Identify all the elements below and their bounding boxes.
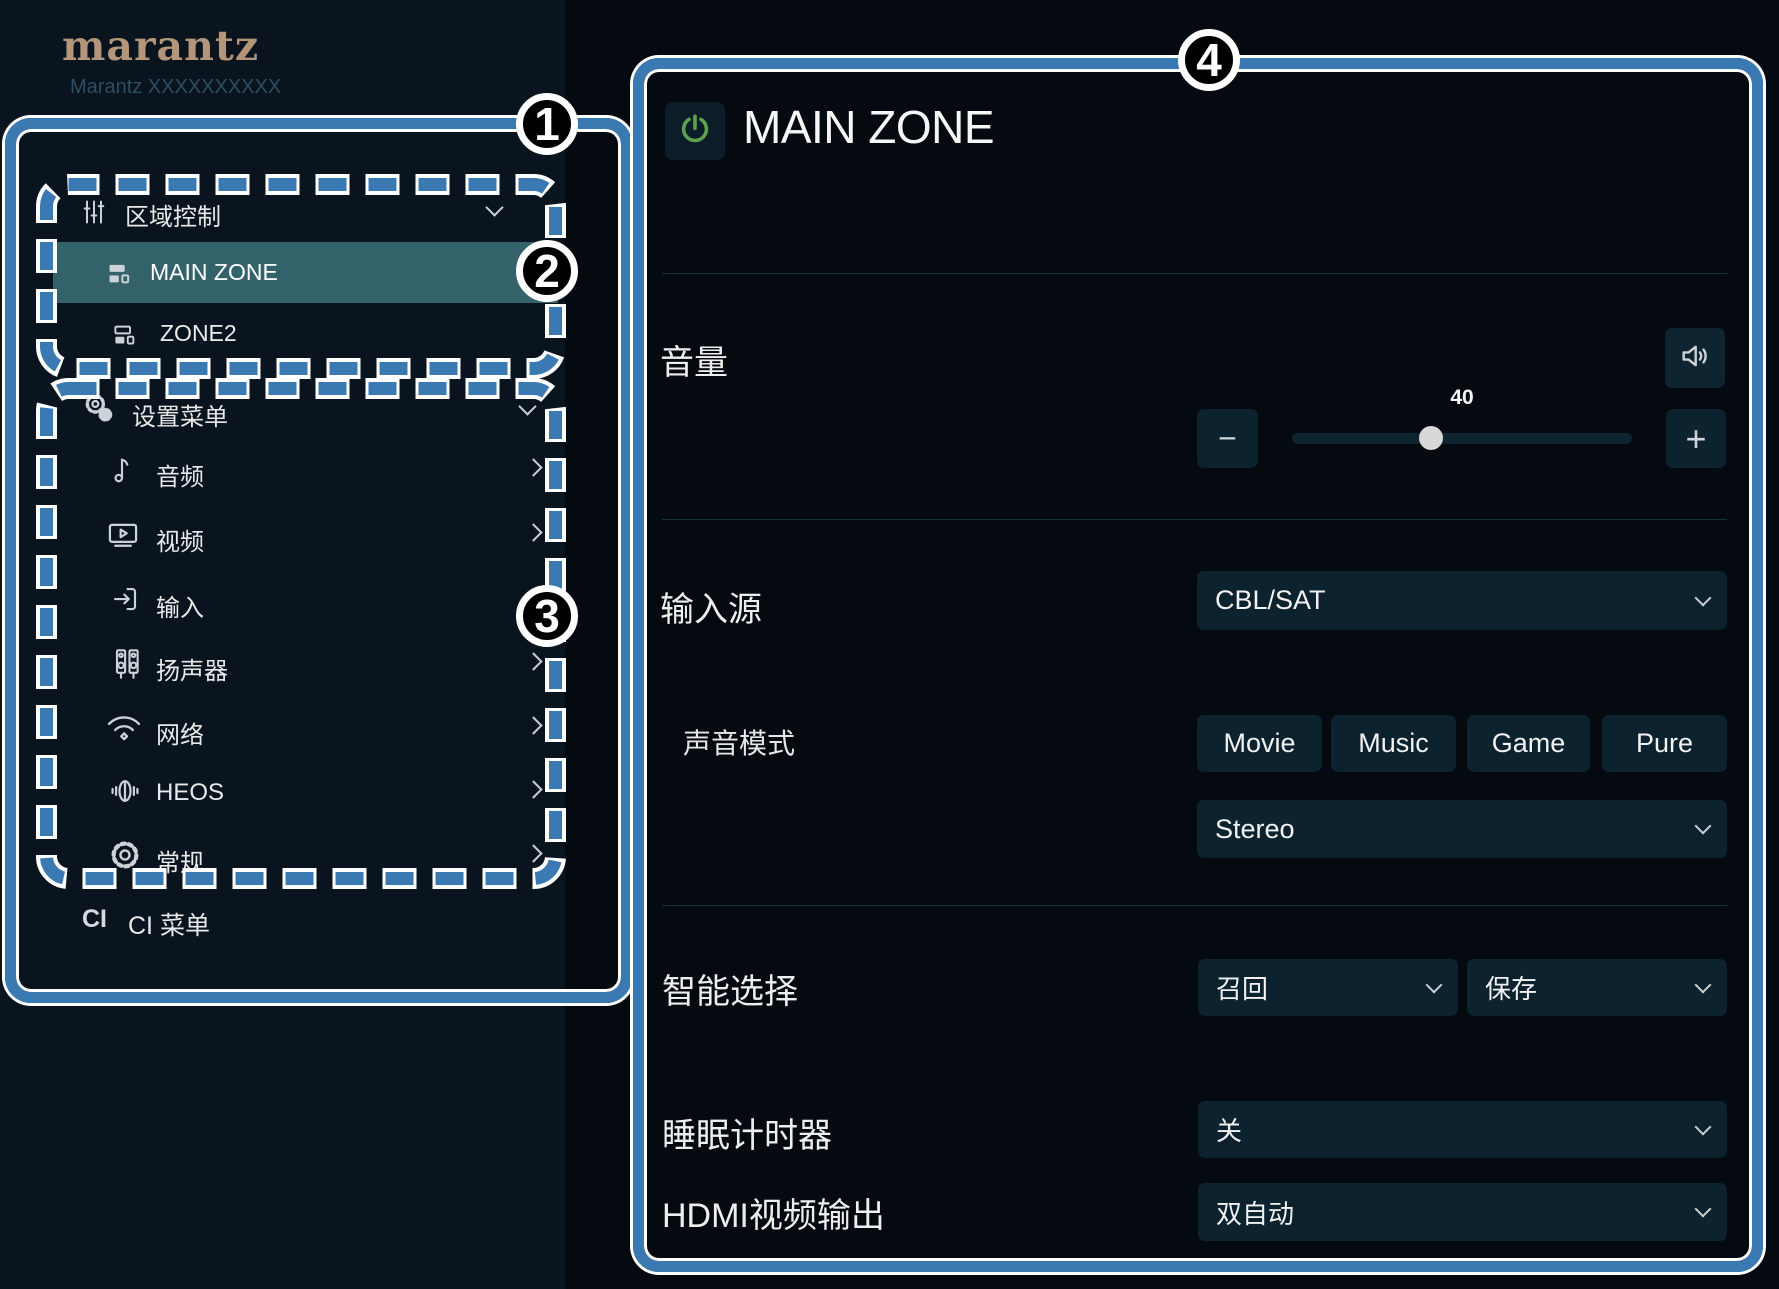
annotation-badge-4: 4 [1178,29,1240,91]
zone-icon [112,321,139,353]
chevron-down-icon [1426,976,1443,993]
sidebar-item-label: MAIN ZONE [150,259,278,286]
sidebar-item-label: 网络 [156,715,204,750]
chevron-down-icon[interactable] [485,198,503,216]
divider [662,905,1727,906]
smart-select-save-select[interactable]: 保存 [1467,959,1727,1016]
mode-button-label: Pure [1636,728,1693,759]
sidebar-item-ci-menu[interactable]: CI CI 菜单 [0,903,565,935]
chevron-down-icon [1695,1118,1712,1135]
hdmi-output-label: HDMI视频输出 [662,1188,885,1237]
power-icon [677,111,713,152]
chevron-down-icon [1695,589,1712,606]
sidebar-item-heos[interactable]: HEOS [0,777,565,807]
plus-icon: + [1685,418,1706,460]
sidebar-item-speakers[interactable]: 扬声器 [0,649,565,679]
sidebar-item-audio[interactable]: 音频 [0,455,565,485]
mode-button-label: Game [1492,728,1566,759]
sleep-timer-label: 睡眠计时器 [662,1108,832,1157]
input-source-select[interactable]: CBL/SAT [1197,571,1727,630]
hdmi-output-select[interactable]: 双自动 [1198,1183,1727,1241]
sidebar-item-general[interactable]: 常规 [0,841,565,871]
badge-number: 1 [534,97,560,151]
sidebar-item-label: 常规 [156,843,204,878]
power-button[interactable] [665,102,725,160]
page-title: MAIN ZONE [743,100,994,154]
speakers-icon [112,646,142,687]
sidebar-item-label: ZONE2 [160,320,237,347]
device-name: Marantz XXXXXXXXXX [70,76,281,99]
sound-mode-pure-button[interactable]: Pure [1602,715,1727,772]
chevron-right-icon [524,458,542,476]
save-value: 保存 [1485,969,1537,1006]
hdmi-output-value: 双自动 [1216,1194,1294,1231]
chevron-down-icon [1695,1201,1712,1218]
smart-select-recall-select[interactable]: 召回 [1198,959,1458,1016]
minus-icon: − [1218,420,1237,457]
divider [662,273,1727,274]
divider [662,519,1727,520]
speaker-wave-icon [1678,339,1712,378]
input-source-value: CBL/SAT [1215,585,1326,616]
sliders-icon [80,198,108,226]
sidebar-item-video[interactable]: 视频 [0,520,565,550]
input-icon [110,584,140,619]
gear-icon [108,838,142,877]
badge-number: 2 [534,244,560,298]
sidebar-item-label: HEOS [156,779,224,807]
badge-number: 3 [534,589,560,643]
music-note-icon [108,452,138,491]
chevron-right-icon [524,780,542,798]
marantz-web-control-screen: marantz Marantz XXXXXXXXXX 区域控制 MAIN ZON… [0,0,1779,1289]
sound-mode-movie-button[interactable]: Movie [1197,715,1322,772]
sidebar: marantz Marantz XXXXXXXXXX 区域控制 MAIN ZON… [0,0,565,1289]
chevron-down-icon [1695,818,1712,835]
gears-icon [82,392,114,424]
zone-control-header[interactable]: 区域控制 [125,197,221,232]
sidebar-item-network[interactable]: 网络 [0,713,565,743]
sound-mode-music-button[interactable]: Music [1331,715,1456,772]
volume-slider-thumb[interactable] [1419,426,1443,450]
sleep-timer-value: 关 [1216,1111,1242,1148]
marantz-logo: marantz [62,22,259,70]
heos-icon [108,775,142,812]
chevron-down-icon [1695,976,1712,993]
annotation-badge-2: 2 [516,240,578,302]
volume-down-button[interactable]: − [1197,409,1258,468]
sidebar-item-zone2[interactable]: ZONE2 [53,303,558,362]
sidebar-item-input[interactable]: 输入 [0,586,565,616]
badge-number: 4 [1196,33,1222,87]
tv-icon [106,518,140,555]
zone-icon [106,259,134,292]
sidebar-item-label: 音频 [156,457,204,492]
sidebar-item-label: 视频 [156,522,204,557]
sidebar-item-label: 输入 [156,588,204,623]
sidebar-item-label: 扬声器 [156,651,228,686]
mode-button-label: Music [1358,728,1429,759]
mode-button-label: Movie [1223,728,1295,759]
sound-mode-value: Stereo [1215,814,1295,845]
smart-select-label: 智能选择 [662,964,798,1013]
volume-slider[interactable] [1292,433,1632,444]
chevron-right-icon [524,844,542,862]
chevron-down-icon[interactable] [518,397,536,415]
volume-value: 40 [1292,386,1632,410]
wifi-icon [105,713,143,748]
ci-icon: CI [82,905,107,934]
annotation-badge-3: 3 [516,585,578,647]
sound-mode-label: 声音模式 [683,722,795,762]
recall-value: 召回 [1216,969,1268,1006]
sidebar-item-label: CI 菜单 [128,906,210,942]
sound-mode-game-button[interactable]: Game [1467,715,1590,772]
chevron-right-icon [524,523,542,541]
volume-up-button[interactable]: + [1666,409,1726,468]
chevron-right-icon [524,652,542,670]
sidebar-item-main-zone[interactable]: MAIN ZONE [53,242,558,303]
input-source-label: 输入源 [660,582,762,631]
callout-box-4 [633,58,1763,1272]
volume-label: 音量 [660,335,728,384]
mute-button[interactable] [1665,328,1725,388]
sound-mode-select[interactable]: Stereo [1197,800,1727,858]
annotation-badge-1: 1 [516,93,578,155]
setup-menu-header[interactable]: 设置菜单 [132,397,228,432]
chevron-right-icon [524,716,542,734]
sleep-timer-select[interactable]: 关 [1198,1101,1727,1158]
